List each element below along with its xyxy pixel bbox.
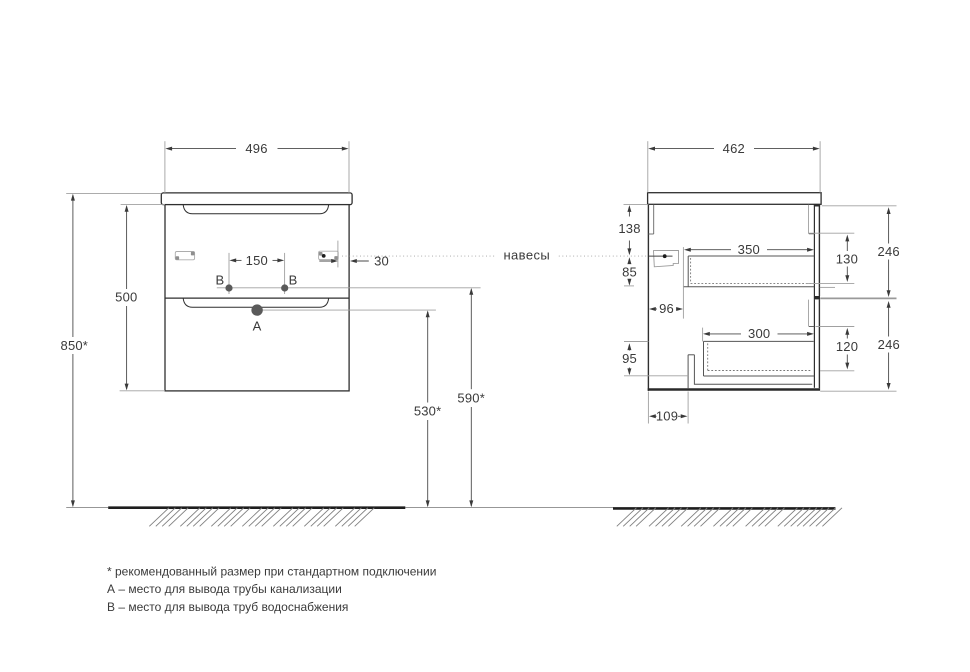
svg-text:120: 120 <box>836 339 858 354</box>
svg-text:A: A <box>253 319 262 334</box>
svg-text:* рекомендованный размер при с: * рекомендованный размер при стандартном… <box>107 565 436 579</box>
svg-text:96: 96 <box>659 301 674 316</box>
svg-text:А – место для вывода трубы кан: А – место для вывода трубы канализации <box>107 582 342 596</box>
svg-text:530*: 530* <box>414 404 442 419</box>
svg-text:246: 246 <box>878 244 900 259</box>
svg-text:496: 496 <box>245 141 267 156</box>
svg-text:30: 30 <box>374 253 389 268</box>
svg-text:850*: 850* <box>61 338 89 353</box>
svg-text:246: 246 <box>878 337 900 352</box>
svg-text:462: 462 <box>723 141 745 156</box>
svg-text:85: 85 <box>622 265 637 280</box>
svg-text:109: 109 <box>656 408 678 423</box>
svg-text:B: B <box>289 273 298 288</box>
svg-text:590*: 590* <box>457 391 485 406</box>
svg-text:500: 500 <box>115 290 137 305</box>
svg-text:130: 130 <box>836 251 858 266</box>
svg-text:B: B <box>215 273 224 288</box>
svg-text:навесы: навесы <box>503 248 550 263</box>
svg-text:150: 150 <box>246 253 268 268</box>
svg-text:В – место для вывода труб водо: В – место для вывода труб водоснабжения <box>107 600 348 614</box>
svg-text:95: 95 <box>622 351 637 366</box>
svg-text:138: 138 <box>618 221 640 236</box>
svg-text:300: 300 <box>748 326 770 341</box>
svg-text:350: 350 <box>738 242 760 257</box>
